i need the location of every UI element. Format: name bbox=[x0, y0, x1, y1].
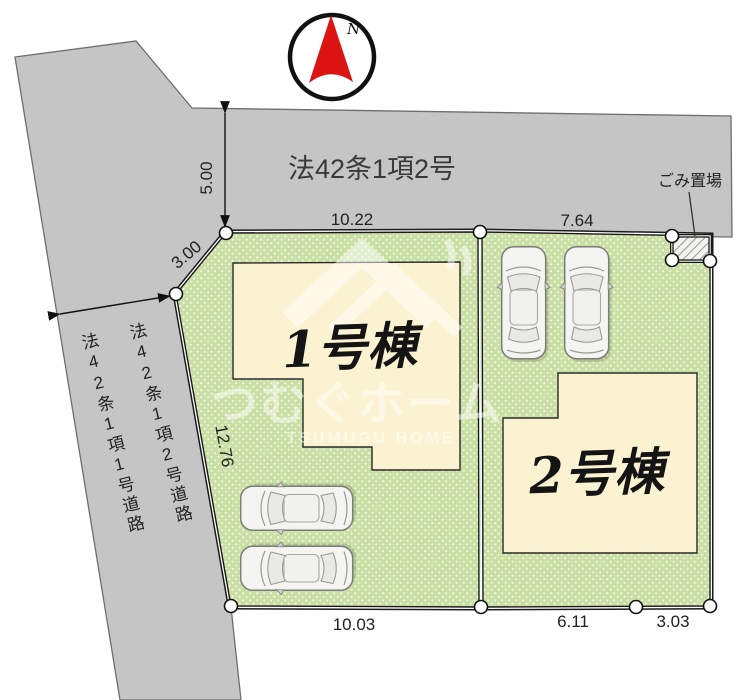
garbage-label: ごみ置場 bbox=[658, 172, 722, 190]
watermark-text-jp: つむぐホーム bbox=[211, 377, 504, 430]
car-lot2-right bbox=[560, 247, 613, 362]
building-2-label: 2号棟 bbox=[527, 441, 673, 505]
compass-n-label: N bbox=[346, 20, 361, 38]
site-plan: 法42条1項2号 つむぐホーム TSUMUGU HOME bbox=[0, 0, 742, 700]
watermark-text-en: TSUMUGU HOME bbox=[286, 430, 455, 447]
dim-lot1-bottom: 10.03 bbox=[333, 615, 376, 634]
dim-lot2-bottom-right: 3.03 bbox=[656, 612, 689, 631]
dim-lot1-top: 10.22 bbox=[331, 210, 374, 229]
north-compass: N bbox=[290, 15, 374, 99]
building-1-label: 1号棟 bbox=[281, 315, 426, 379]
dim-road-width: 5.00 bbox=[197, 161, 216, 194]
dim-lot2-bottom-left: 6.11 bbox=[557, 612, 589, 631]
car-lot1-top bbox=[241, 482, 356, 535]
top-road-label: 法42条1項2号 bbox=[288, 154, 456, 184]
site-plan-svg: 法42条1項2号 つむぐホーム TSUMUGU HOME bbox=[0, 0, 742, 700]
dim-lot2-top: 7.64 bbox=[560, 211, 593, 230]
car-lot2-left bbox=[497, 247, 550, 362]
car-lot1-bottom bbox=[241, 542, 356, 595]
